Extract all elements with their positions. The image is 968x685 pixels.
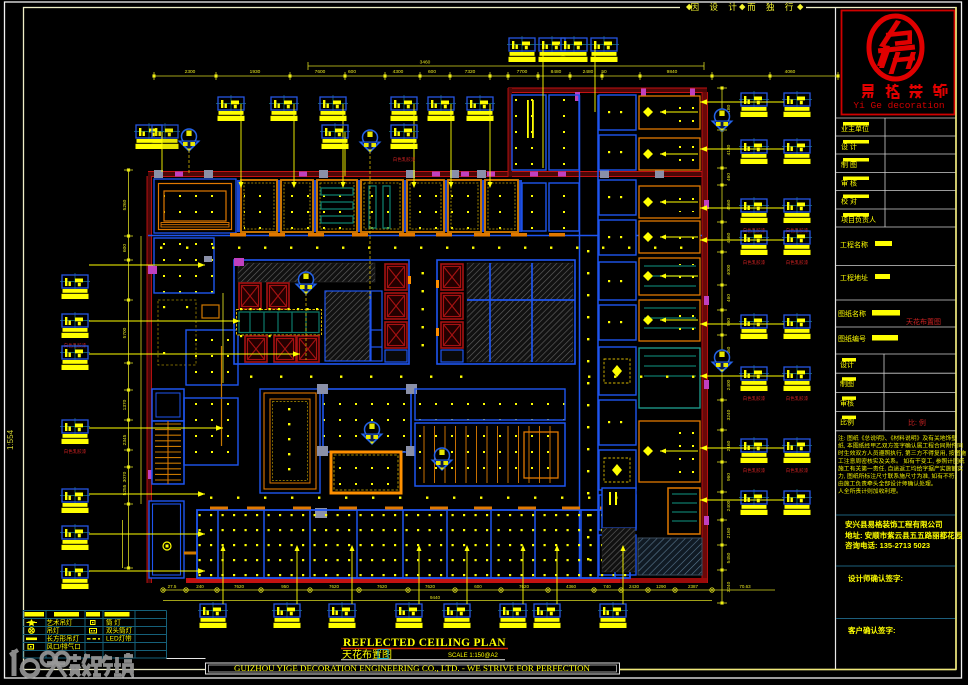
svg-text:白色乳胶漆: 白色乳胶漆 (64, 448, 87, 455)
svg-text:1290: 1290 (656, 584, 667, 589)
svg-text:风口/排气口: 风口/排气口 (47, 642, 81, 651)
svg-text:3460: 3460 (420, 60, 431, 66)
svg-text:安兴县易格装饰工程有限公司: 安兴县易格装饰工程有限公司 (845, 519, 943, 529)
svg-text:1:554: 1:554 (6, 429, 15, 450)
svg-text:纸, 本图纸经甲乙双方签字确认属工程合同附件同: 纸, 本图纸经甲乙双方签字确认属工程合同附件同 (838, 442, 963, 450)
svg-text:7620: 7620 (377, 584, 388, 589)
svg-text:白色乳胶漆: 白色乳胶漆 (393, 156, 416, 163)
svg-text:白色乳胶漆: 白色乳胶漆 (743, 395, 766, 402)
svg-text:50: 50 (601, 69, 607, 75)
svg-text:图纸名称: 图纸名称 (838, 309, 866, 318)
svg-text:1370: 1370 (122, 399, 128, 410)
svg-text:27.5: 27.5 (168, 584, 177, 589)
svg-text:3240: 3240 (726, 581, 732, 592)
svg-text:吊灯: 吊灯 (47, 626, 61, 635)
svg-text:白色乳胶漆: 白色乳胶漆 (743, 259, 766, 266)
svg-text:4130: 4130 (726, 144, 732, 155)
svg-text:地址: 安顺市紫云县五五路丽都花园: 地址: 安顺市紫云县五五路丽都花园 (845, 530, 963, 540)
svg-text:7700: 7700 (517, 69, 528, 75)
svg-text:5700: 5700 (122, 327, 128, 338)
svg-text:960: 960 (726, 473, 732, 481)
svg-text:2345: 2345 (122, 434, 128, 445)
svg-text:设计师确认签字:: 设计师确认签字: (848, 573, 903, 583)
svg-text:图纸编号: 图纸编号 (838, 334, 866, 343)
svg-text:REFLECTED CEILING PLAN: REFLECTED CEILING PLAN (343, 637, 506, 649)
svg-text:240: 240 (196, 584, 204, 589)
svg-text:白色乳胶漆: 白色乳胶漆 (786, 395, 809, 402)
svg-text:天花布置图: 天花布置图 (906, 317, 941, 326)
svg-text:注: 图纸《总说明》、《材料说明》及有关地饰壁: 注: 图纸《总说明》、《材料说明》及有关地饰壁 (838, 434, 957, 442)
svg-text:1930: 1930 (250, 69, 261, 75)
svg-text:7320: 7320 (465, 69, 476, 75)
svg-text:力, 图纸所标注尺寸联系施尺寸为准, 如有不符,: 力, 图纸所标注尺寸联系施尺寸为准, 如有不符, (838, 472, 957, 480)
svg-text:5260: 5260 (122, 199, 128, 210)
svg-text:白色乳胶漆: 白色乳胶漆 (786, 467, 809, 474)
svg-text:7620: 7620 (425, 584, 436, 589)
svg-text:Yi Ge decoration: Yi Ge decoration (853, 100, 944, 111)
svg-text:460: 460 (726, 294, 732, 302)
svg-text:2160: 2160 (726, 440, 732, 451)
svg-text:施工有关第一责任, 自途返工均给字据产实施额实: 施工有关第一责任, 自途返工均给字据产实施额实 (838, 464, 963, 472)
svg-text:2400: 2400 (726, 500, 732, 511)
svg-text:4360: 4360 (566, 584, 577, 589)
svg-text:长方形吊灯: 长方形吊灯 (47, 634, 80, 643)
svg-text:双头筒灯: 双头筒灯 (106, 626, 133, 635)
svg-text:工程名称: 工程名称 (840, 240, 868, 249)
svg-text:由施工负责牵头全部设计师确认处理。: 由施工负责牵头全部设计师确认处理。 (838, 480, 937, 488)
svg-text:600: 600 (348, 69, 356, 75)
svg-text:咨询电话: 135-2713 5023: 咨询电话: 135-2713 5023 (845, 540, 930, 550)
svg-text:2387: 2387 (688, 584, 699, 589)
svg-text:8480: 8480 (551, 69, 562, 75)
svg-text:3240: 3240 (726, 409, 732, 420)
svg-text:2430: 2430 (629, 584, 640, 589)
svg-text:艺术吊灯: 艺术吊灯 (47, 618, 74, 627)
svg-text:2160: 2160 (726, 527, 732, 538)
svg-text:4060: 4060 (785, 69, 796, 75)
svg-text:工程地址: 工程地址 (840, 273, 868, 282)
svg-text:SCALE 1:150@A2: SCALE 1:150@A2 (448, 653, 498, 659)
svg-text:4560: 4560 (726, 199, 732, 210)
svg-text:7620: 7620 (234, 584, 245, 589)
svg-text:工注意周密核实及关系。 如有干变工, 参照计图纸: 工注意周密核实及关系。 如有干变工, 参照计图纸 (838, 457, 965, 465)
svg-text:460: 460 (726, 173, 732, 181)
svg-text:70.63: 70.63 (739, 584, 751, 589)
svg-text:7620: 7620 (519, 584, 530, 589)
svg-text:人全所责计则加收利理。: 人全所责计则加收利理。 (838, 487, 902, 495)
svg-text:白色乳胶漆: 白色乳胶漆 (743, 467, 766, 474)
svg-text:比: 例: 比: 例 (908, 418, 926, 427)
svg-text:4000: 4000 (726, 264, 732, 275)
svg-text:9840: 9840 (667, 69, 678, 75)
svg-text:2400: 2400 (726, 379, 732, 390)
svg-text:GUIZHOU YIGE DECORATION ENGINE: GUIZHOU YIGE DECORATION ENGINEERING CO.,… (234, 663, 590, 673)
svg-text:客户确认签字:: 客户确认签字: (847, 625, 896, 635)
svg-text:筒 灯: 筒 灯 (106, 618, 121, 627)
svg-text:960: 960 (726, 318, 732, 326)
svg-text:5450: 5450 (726, 552, 732, 563)
svg-text:7620: 7620 (329, 584, 340, 589)
svg-text:LED灯带: LED灯带 (106, 634, 132, 643)
svg-text:600: 600 (428, 69, 436, 75)
svg-text:740: 740 (603, 584, 611, 589)
svg-text:2300: 2300 (185, 69, 196, 75)
svg-text:3070: 3070 (122, 471, 128, 482)
svg-text:时生效双方人员遵照执行, 第三方不得复用, 按图施: 时生效双方人员遵照执行, 第三方不得复用, 按图施 (838, 449, 966, 457)
svg-text:950: 950 (281, 584, 289, 589)
svg-text:600: 600 (474, 584, 482, 589)
svg-text:2480: 2480 (583, 69, 594, 75)
svg-text:白色乳胶漆: 白色乳胶漆 (786, 259, 809, 266)
svg-text:7600: 7600 (315, 69, 326, 75)
svg-text:4300: 4300 (393, 69, 404, 75)
svg-text:9440: 9440 (430, 595, 441, 600)
svg-text:600: 600 (122, 244, 128, 252)
svg-text:4560: 4560 (726, 232, 732, 243)
